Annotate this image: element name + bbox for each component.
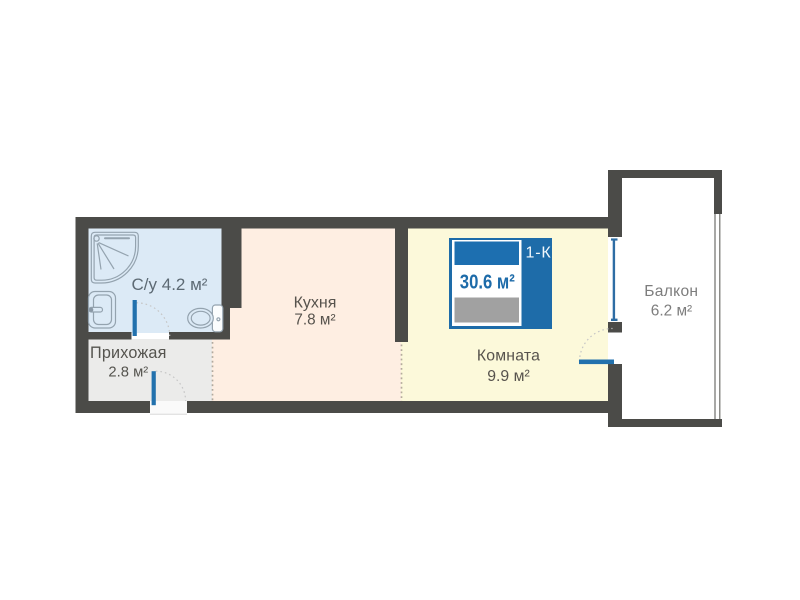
- svg-text:Балкон: Балкон: [644, 283, 698, 300]
- svg-text:7.8 м²: 7.8 м²: [294, 312, 335, 329]
- svg-text:6.2 м²: 6.2 м²: [651, 303, 692, 320]
- svg-text:2.8 м²: 2.8 м²: [108, 365, 148, 381]
- svg-text:30.6 м²: 30.6 м²: [460, 271, 515, 293]
- svg-text:С/у 4.2 м²: С/у 4.2 м²: [132, 275, 208, 294]
- svg-text:9.9 м²: 9.9 м²: [487, 368, 529, 385]
- svg-text:1-К: 1-К: [526, 245, 552, 262]
- svg-text:Кухня: Кухня: [294, 295, 337, 312]
- svg-text:Прихожая: Прихожая: [90, 344, 167, 362]
- svg-text:Комната: Комната: [477, 348, 540, 365]
